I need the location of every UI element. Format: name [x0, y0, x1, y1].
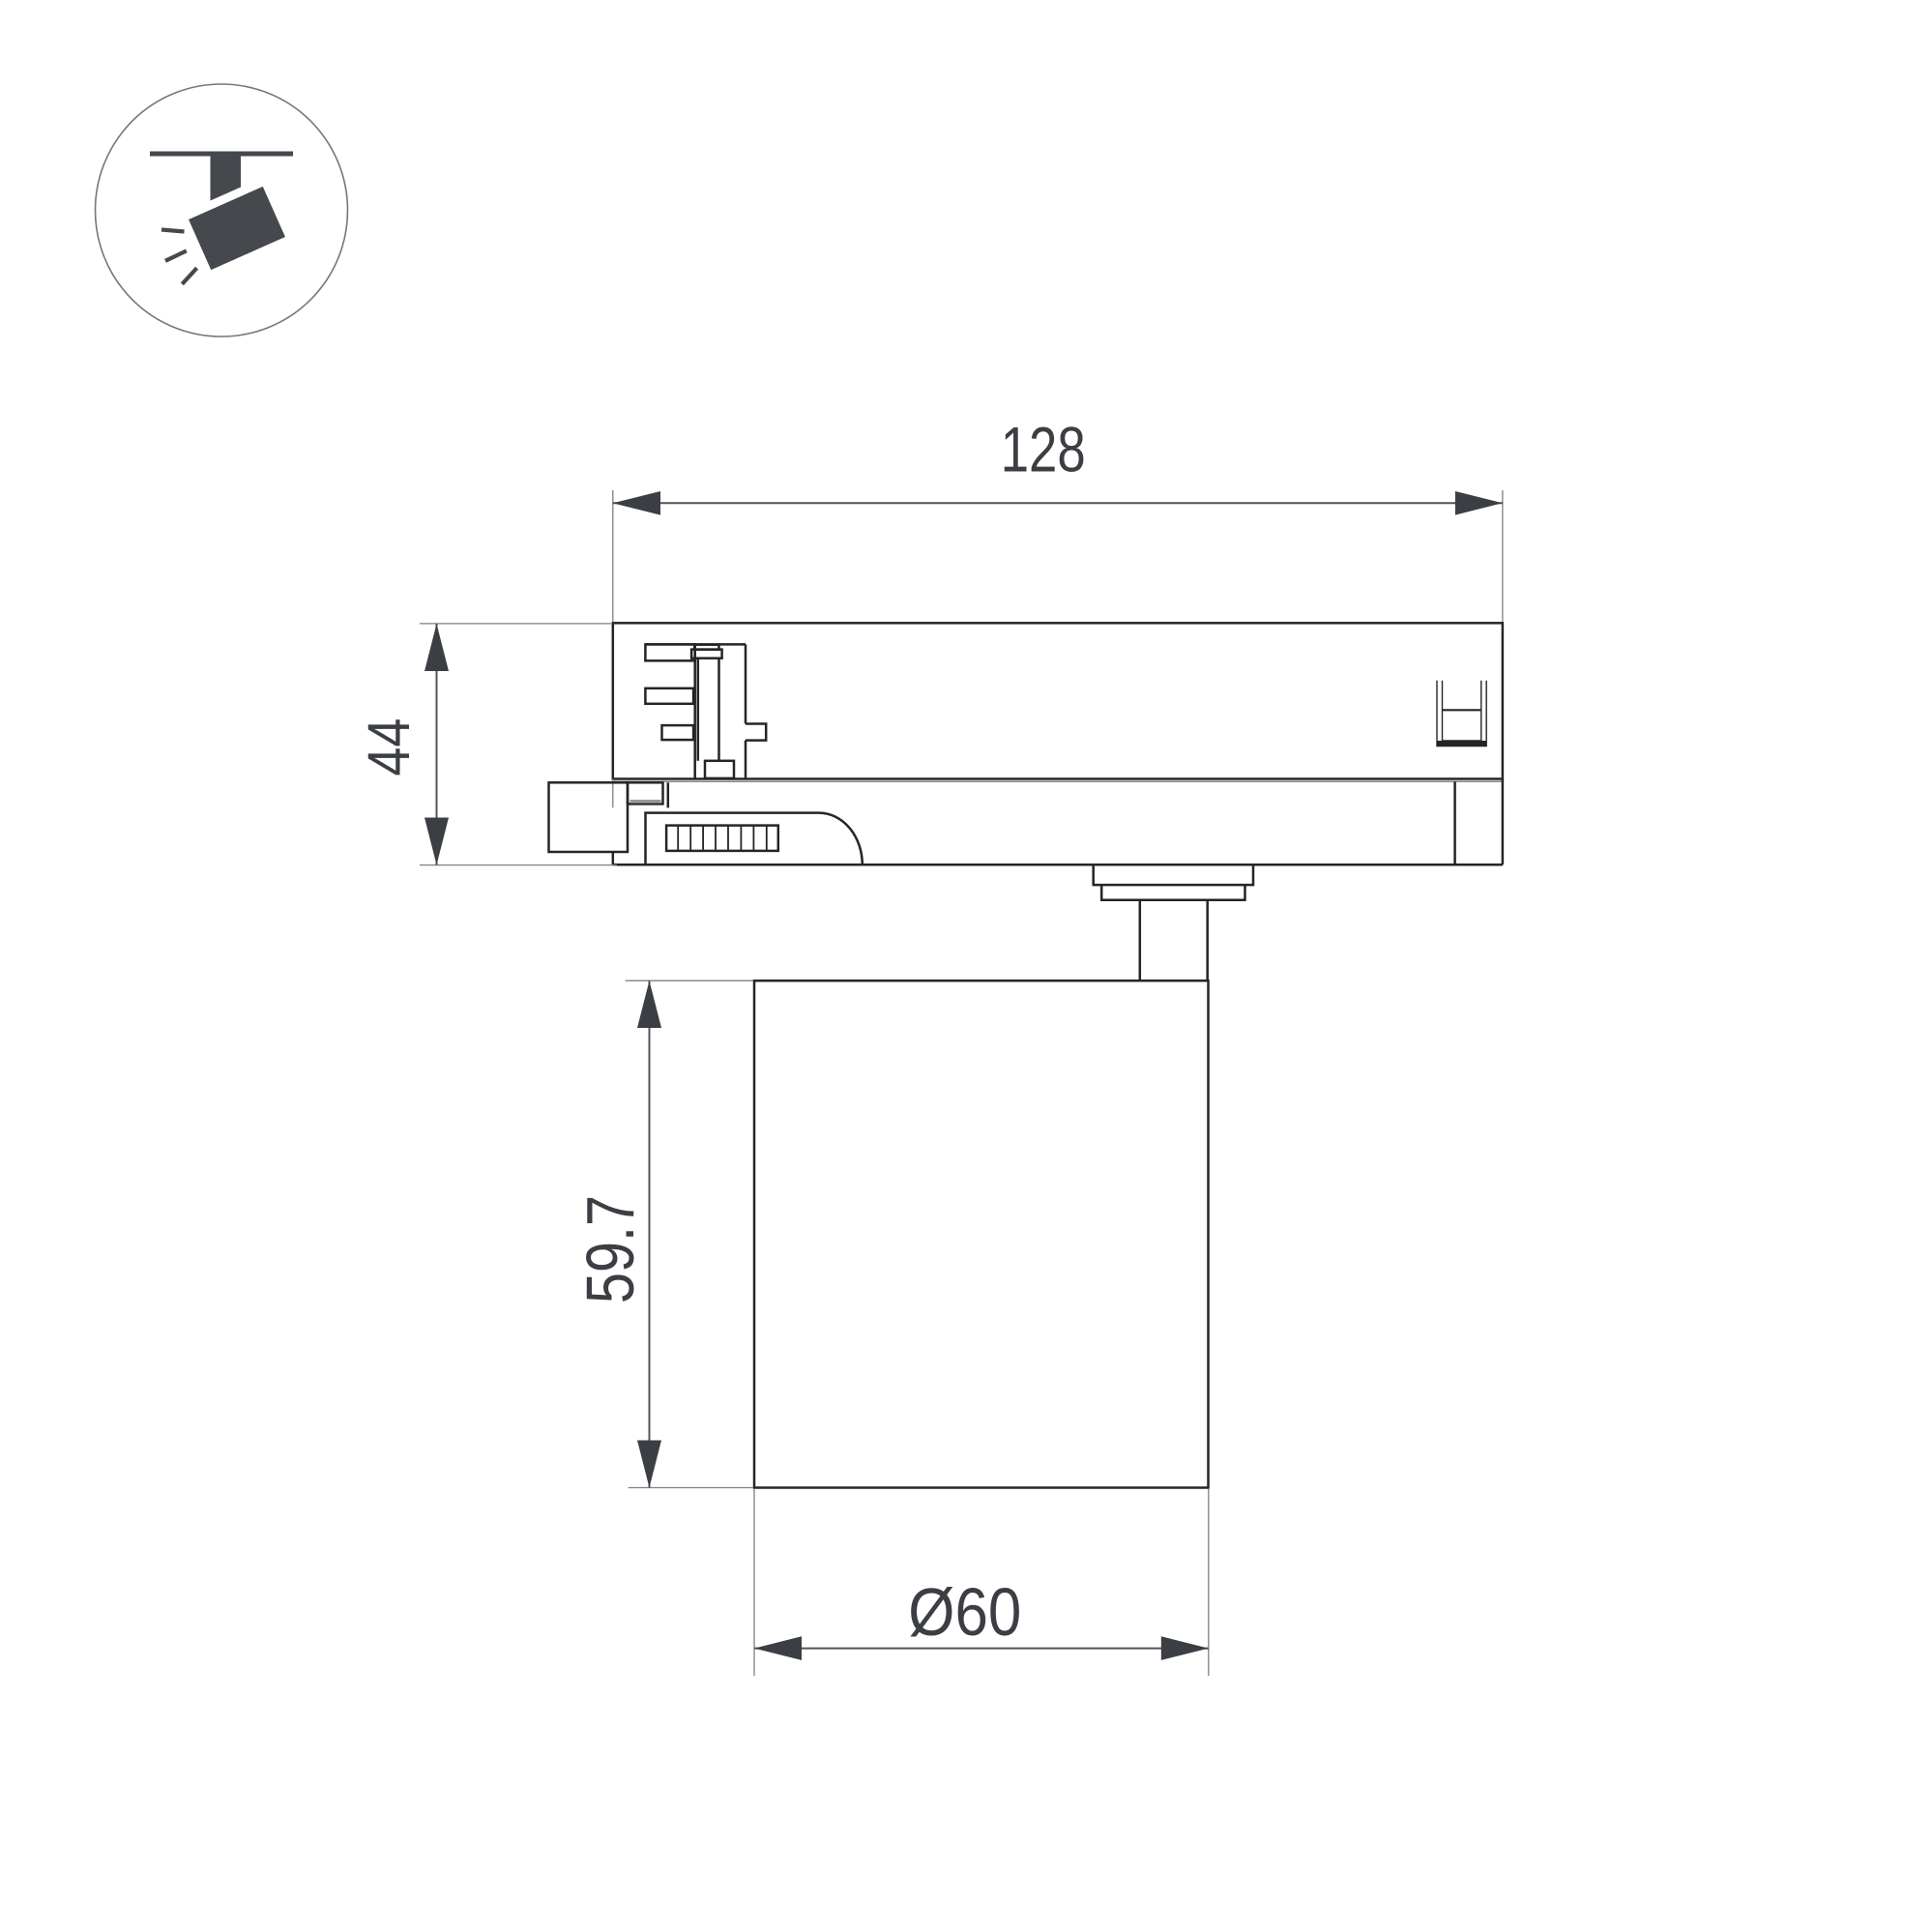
svg-text:59.7: 59.7 [572, 1195, 648, 1303]
svg-text:128: 128 [1001, 414, 1086, 485]
svg-text:44: 44 [356, 718, 422, 776]
svg-text:Ø60: Ø60 [908, 1574, 1021, 1650]
